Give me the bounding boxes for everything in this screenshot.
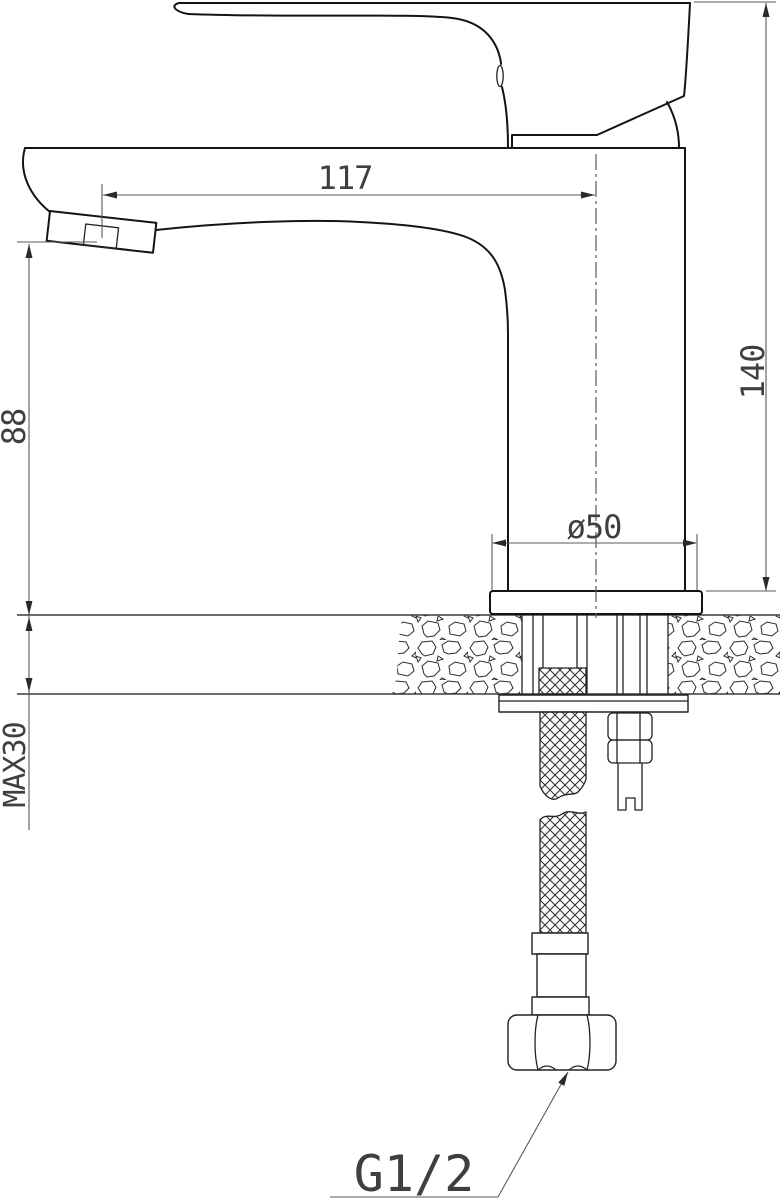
stud-core-lines bbox=[617, 713, 640, 763]
arrowhead-left-d50 bbox=[492, 540, 506, 547]
arrowhead-left bbox=[103, 192, 117, 199]
hex-nut-body bbox=[508, 1015, 616, 1070]
counter-stone-hatch-right bbox=[668, 615, 780, 694]
hose-collar bbox=[532, 997, 589, 1015]
dim-base-diameter-label: ø50 bbox=[567, 508, 622, 546]
lever-bottom-edge bbox=[188, 14, 501, 64]
countertop-cross-section bbox=[17, 615, 780, 694]
dim-thread-label: G1/2 bbox=[354, 1145, 474, 1200]
arrowhead-down-88 bbox=[26, 601, 33, 615]
dimension-overall-height: 140 bbox=[694, 2, 776, 591]
stud-nut-upper bbox=[608, 713, 652, 740]
arrowhead-up bbox=[763, 3, 770, 17]
hose-upper-segment bbox=[540, 712, 586, 799]
spout-tip-curve bbox=[23, 148, 50, 212]
dimension-spout-reach: 117 bbox=[102, 159, 595, 238]
lever-rear-edge bbox=[512, 3, 690, 147]
hose-neck-tube bbox=[537, 954, 586, 997]
mounting-stud bbox=[608, 713, 652, 810]
stud-nut-lower bbox=[608, 740, 652, 763]
mounting-shank bbox=[499, 615, 688, 712]
aerator-outlet bbox=[83, 224, 118, 249]
stud-rod-with-slot bbox=[618, 763, 642, 810]
cartridge-dome-arc bbox=[667, 102, 679, 148]
dim-spout-reach-label: 117 bbox=[318, 159, 373, 197]
hose-nut bbox=[508, 1015, 616, 1070]
arrowhead-up-max30 bbox=[26, 617, 33, 631]
drawing-canvas: 117 140 88 MAX30 ø50 G1/2 bbox=[0, 0, 784, 1200]
arrowhead-right-d50 bbox=[683, 540, 697, 547]
counter-stone-hatch-left bbox=[392, 615, 522, 694]
arrowhead-up-88 bbox=[26, 244, 33, 258]
handle-lever bbox=[174, 3, 690, 148]
dim-max-thickness-label: MAX30 bbox=[0, 722, 33, 807]
spout-underside-and-column-left bbox=[156, 221, 508, 591]
dim-overall-height-label: 140 bbox=[734, 345, 772, 400]
hose-lower-segment bbox=[540, 812, 586, 933]
supply-hose bbox=[508, 712, 616, 1070]
hose-in-shank bbox=[539, 668, 586, 694]
stud-thread-lines bbox=[617, 615, 647, 694]
hose-ferrule bbox=[532, 933, 588, 954]
arrowhead-leader bbox=[558, 1072, 568, 1086]
dim-spout-height-label: 88 bbox=[0, 409, 33, 446]
arrowhead-right bbox=[581, 192, 595, 199]
dimension-spout-height-and-thickness: 88 MAX30 bbox=[0, 242, 97, 830]
dimension-base-diameter: ø50 bbox=[492, 508, 697, 590]
faucet-technical-drawing: 117 140 88 MAX30 ø50 G1/2 bbox=[0, 0, 784, 1200]
body-front-edge bbox=[502, 87, 508, 147]
arrowhead-down-max30 bbox=[26, 678, 33, 692]
lever-tip bbox=[174, 3, 188, 14]
ext-lines-height bbox=[694, 2, 776, 591]
arrowhead-down bbox=[763, 577, 770, 591]
lever-front-detail bbox=[497, 66, 503, 87]
annotation-thread-size: G1/2 bbox=[330, 1072, 568, 1200]
washer-plate bbox=[499, 695, 688, 712]
